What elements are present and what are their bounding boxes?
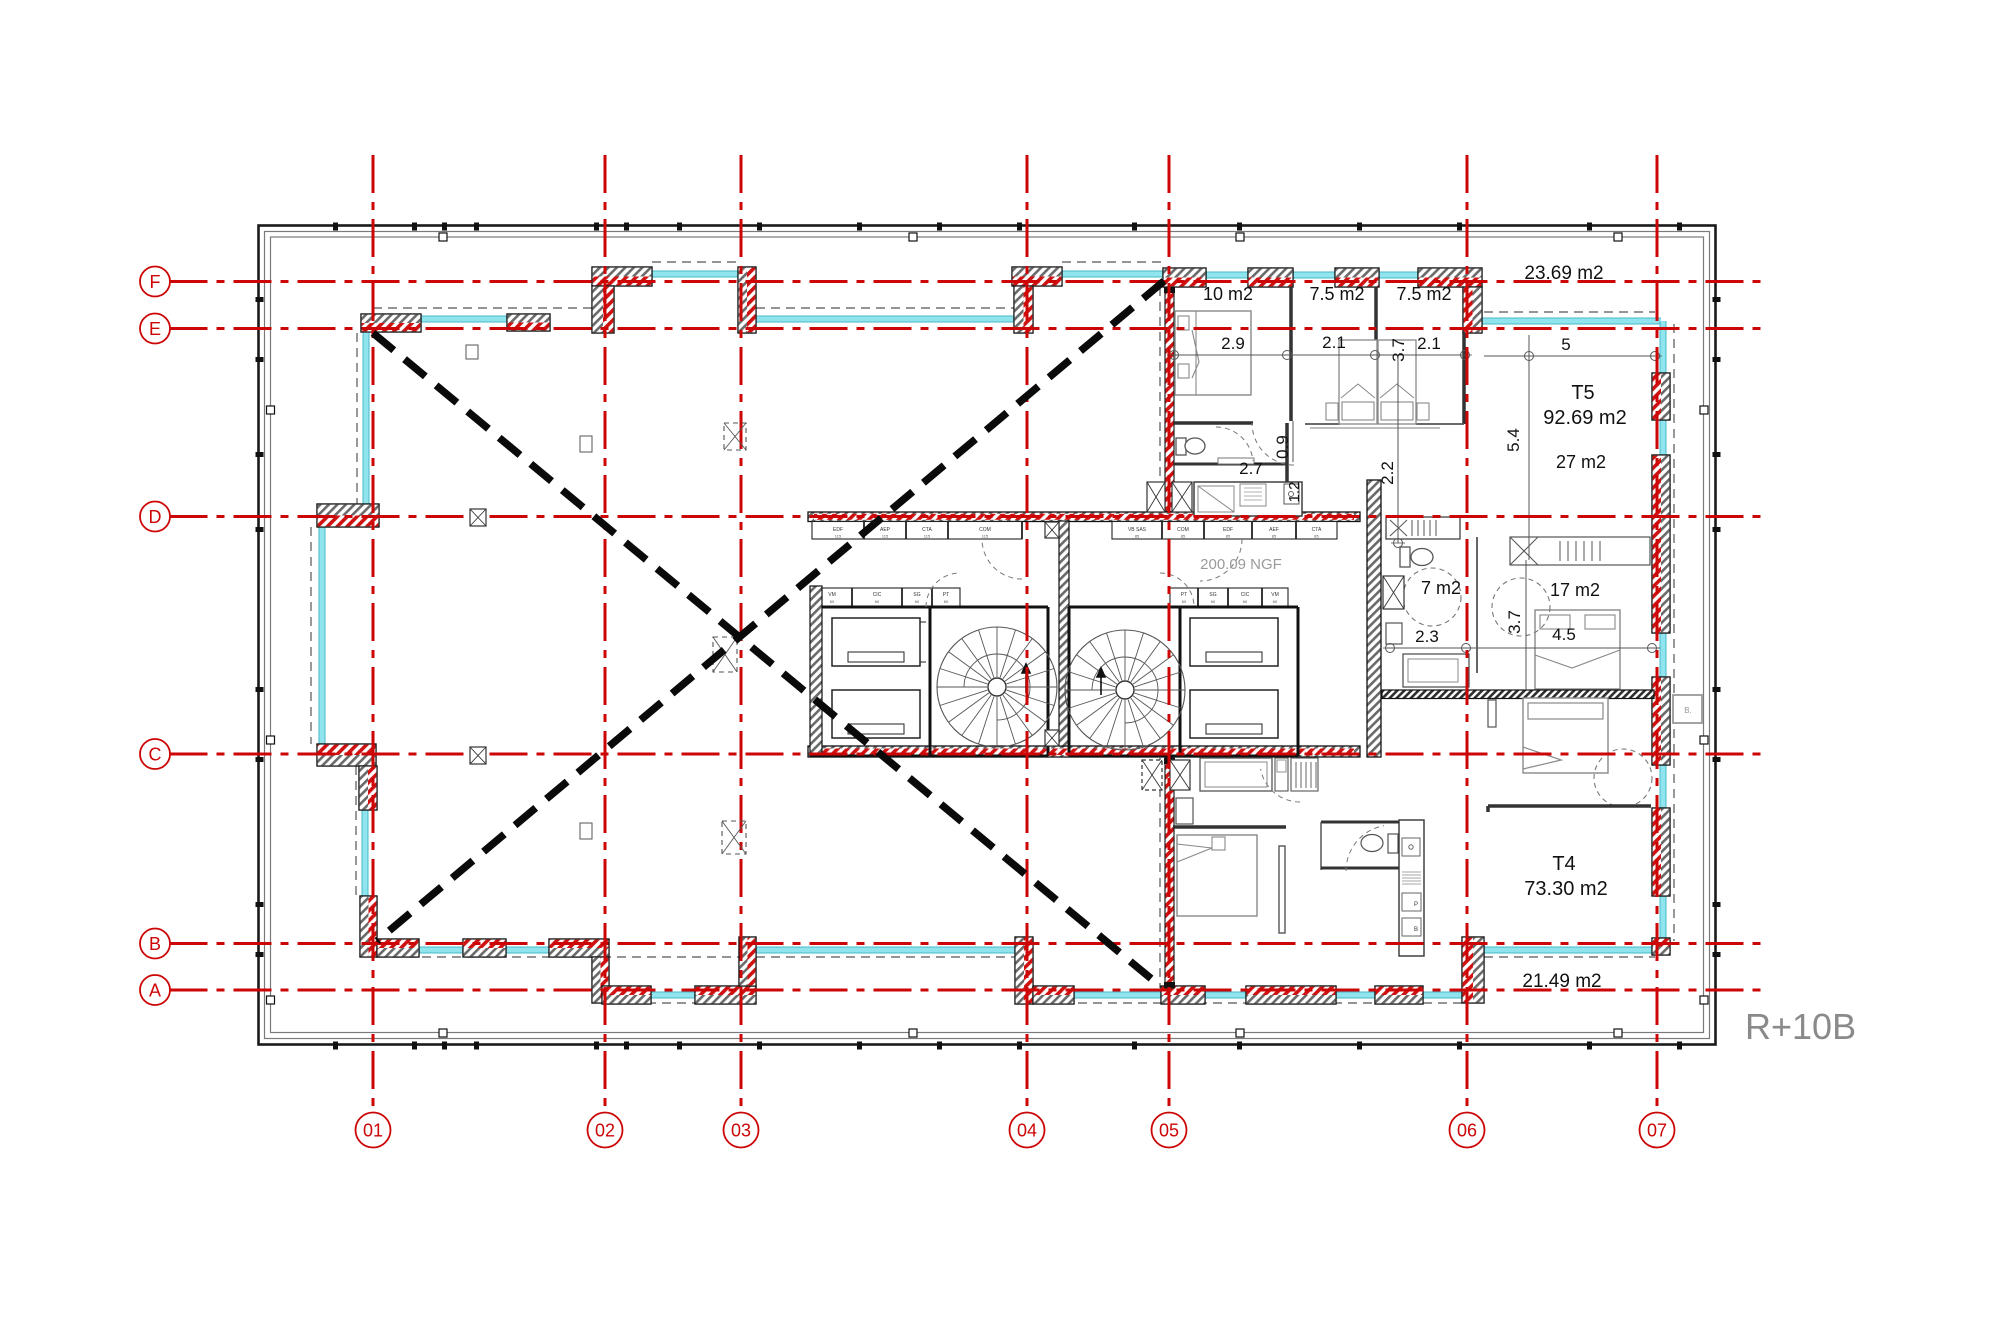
svg-text:60: 60 <box>1243 599 1248 604</box>
svg-text:B: B <box>1414 927 1418 933</box>
svg-text:60: 60 <box>944 599 949 604</box>
svg-text:B: B <box>149 934 161 954</box>
svg-text:115: 115 <box>835 534 842 539</box>
svg-text:85: 85 <box>1181 534 1186 539</box>
svg-text:06: 06 <box>1457 1121 1477 1141</box>
svg-text:5.4: 5.4 <box>1504 428 1523 452</box>
svg-text:4.5: 4.5 <box>1552 625 1576 644</box>
svg-text:B.: B. <box>1684 706 1692 715</box>
svg-text:CIC: CIC <box>1241 592 1250 598</box>
svg-text:CIC: CIC <box>873 592 882 598</box>
svg-text:2.9: 2.9 <box>1221 334 1245 353</box>
svg-text:F: F <box>150 272 161 292</box>
svg-text:2.3: 2.3 <box>1415 627 1439 646</box>
svg-text:CTA: CTA <box>922 527 932 533</box>
svg-text:VM: VM <box>828 592 836 598</box>
svg-text:D: D <box>149 507 162 527</box>
svg-text:85: 85 <box>1226 534 1231 539</box>
svg-text:85: 85 <box>1135 534 1140 539</box>
svg-text:27 m2: 27 m2 <box>1556 452 1606 472</box>
svg-text:AEF: AEF <box>1269 527 1279 533</box>
svg-text:01: 01 <box>363 1121 383 1141</box>
svg-text:85: 85 <box>1314 534 1319 539</box>
svg-text:2.7: 2.7 <box>1239 459 1263 478</box>
svg-text:7 m2: 7 m2 <box>1421 578 1461 598</box>
svg-text:COM: COM <box>1177 527 1189 533</box>
svg-text:115: 115 <box>924 534 931 539</box>
svg-text:60: 60 <box>915 599 920 604</box>
svg-text:60: 60 <box>1211 599 1216 604</box>
svg-text:04: 04 <box>1017 1121 1037 1141</box>
svg-text:T4: T4 <box>1552 853 1575 875</box>
svg-text:60: 60 <box>1182 599 1187 604</box>
svg-text:0.9: 0.9 <box>1273 435 1292 459</box>
svg-text:03: 03 <box>731 1121 751 1141</box>
svg-text:P: P <box>1414 902 1418 908</box>
svg-text:200.09 NGF: 200.09 NGF <box>1200 556 1282 573</box>
svg-text:SG: SG <box>1209 592 1216 598</box>
svg-text:60: 60 <box>875 599 880 604</box>
svg-text:10 m2: 10 m2 <box>1203 284 1253 304</box>
svg-text:60: 60 <box>830 599 835 604</box>
svg-text:2.2: 2.2 <box>1378 461 1397 485</box>
svg-text:E: E <box>149 319 161 339</box>
svg-text:7.5 m2: 7.5 m2 <box>1309 284 1364 304</box>
svg-text:C: C <box>149 745 162 765</box>
svg-text:2.1: 2.1 <box>1322 333 1346 352</box>
svg-text:5: 5 <box>1561 335 1570 354</box>
svg-text:60: 60 <box>1273 599 1278 604</box>
svg-text:73.30 m2: 73.30 m2 <box>1524 878 1607 900</box>
svg-text:SG: SG <box>913 592 920 598</box>
svg-text:CTA: CTA <box>1312 527 1322 533</box>
svg-text:85: 85 <box>1272 534 1277 539</box>
svg-text:3.7: 3.7 <box>1505 610 1524 634</box>
svg-text:A: A <box>149 981 161 1001</box>
svg-text:115: 115 <box>982 534 989 539</box>
svg-text:02: 02 <box>595 1121 615 1141</box>
svg-text:COM: COM <box>979 527 991 533</box>
svg-text:EDF: EDF <box>1223 527 1233 533</box>
svg-text:2.1: 2.1 <box>1417 334 1441 353</box>
svg-text:115: 115 <box>882 534 889 539</box>
svg-text:PT: PT <box>943 592 949 598</box>
svg-text:92.69 m2: 92.69 m2 <box>1543 407 1626 429</box>
svg-text:7.5 m2: 7.5 m2 <box>1396 284 1451 304</box>
svg-text:1.2: 1.2 <box>1286 482 1303 503</box>
svg-text:07: 07 <box>1647 1121 1667 1141</box>
svg-text:05: 05 <box>1159 1121 1179 1141</box>
svg-text:T5: T5 <box>1571 382 1594 404</box>
svg-text:VB SAS: VB SAS <box>1128 527 1147 533</box>
svg-text:EDF: EDF <box>833 527 843 533</box>
svg-text:17 m2: 17 m2 <box>1550 580 1600 600</box>
svg-text:AEP: AEP <box>880 527 891 533</box>
svg-text:PT: PT <box>1181 592 1187 598</box>
svg-text:R+10B: R+10B <box>1745 1006 1856 1047</box>
svg-text:VM: VM <box>1271 592 1279 598</box>
